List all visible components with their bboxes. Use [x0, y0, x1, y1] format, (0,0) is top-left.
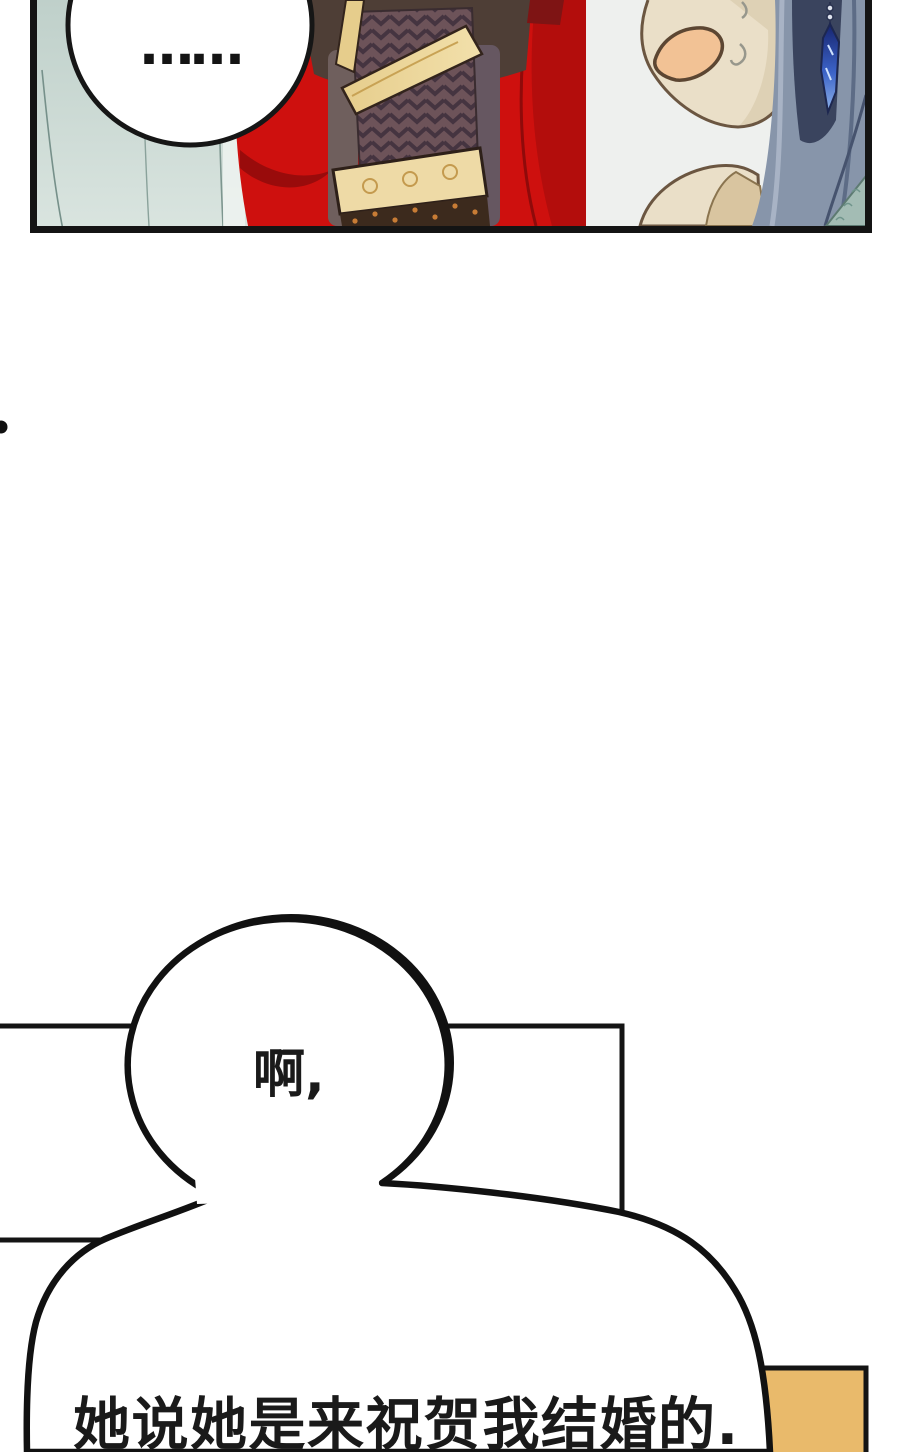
speech-text-main: 她说她是来祝贺我结婚的.: [73, 1392, 740, 1452]
speech-bubbles-art: 啊, 她说她是来祝贺我结婚的.: [0, 0, 900, 1452]
lower-composition: 啊, 她说她是来祝贺我结婚的.: [0, 0, 900, 1452]
speech-text-ah: 啊,: [253, 1045, 325, 1105]
left-edge-dot: [0, 421, 8, 434]
comic-page: ……: [0, 0, 900, 1452]
